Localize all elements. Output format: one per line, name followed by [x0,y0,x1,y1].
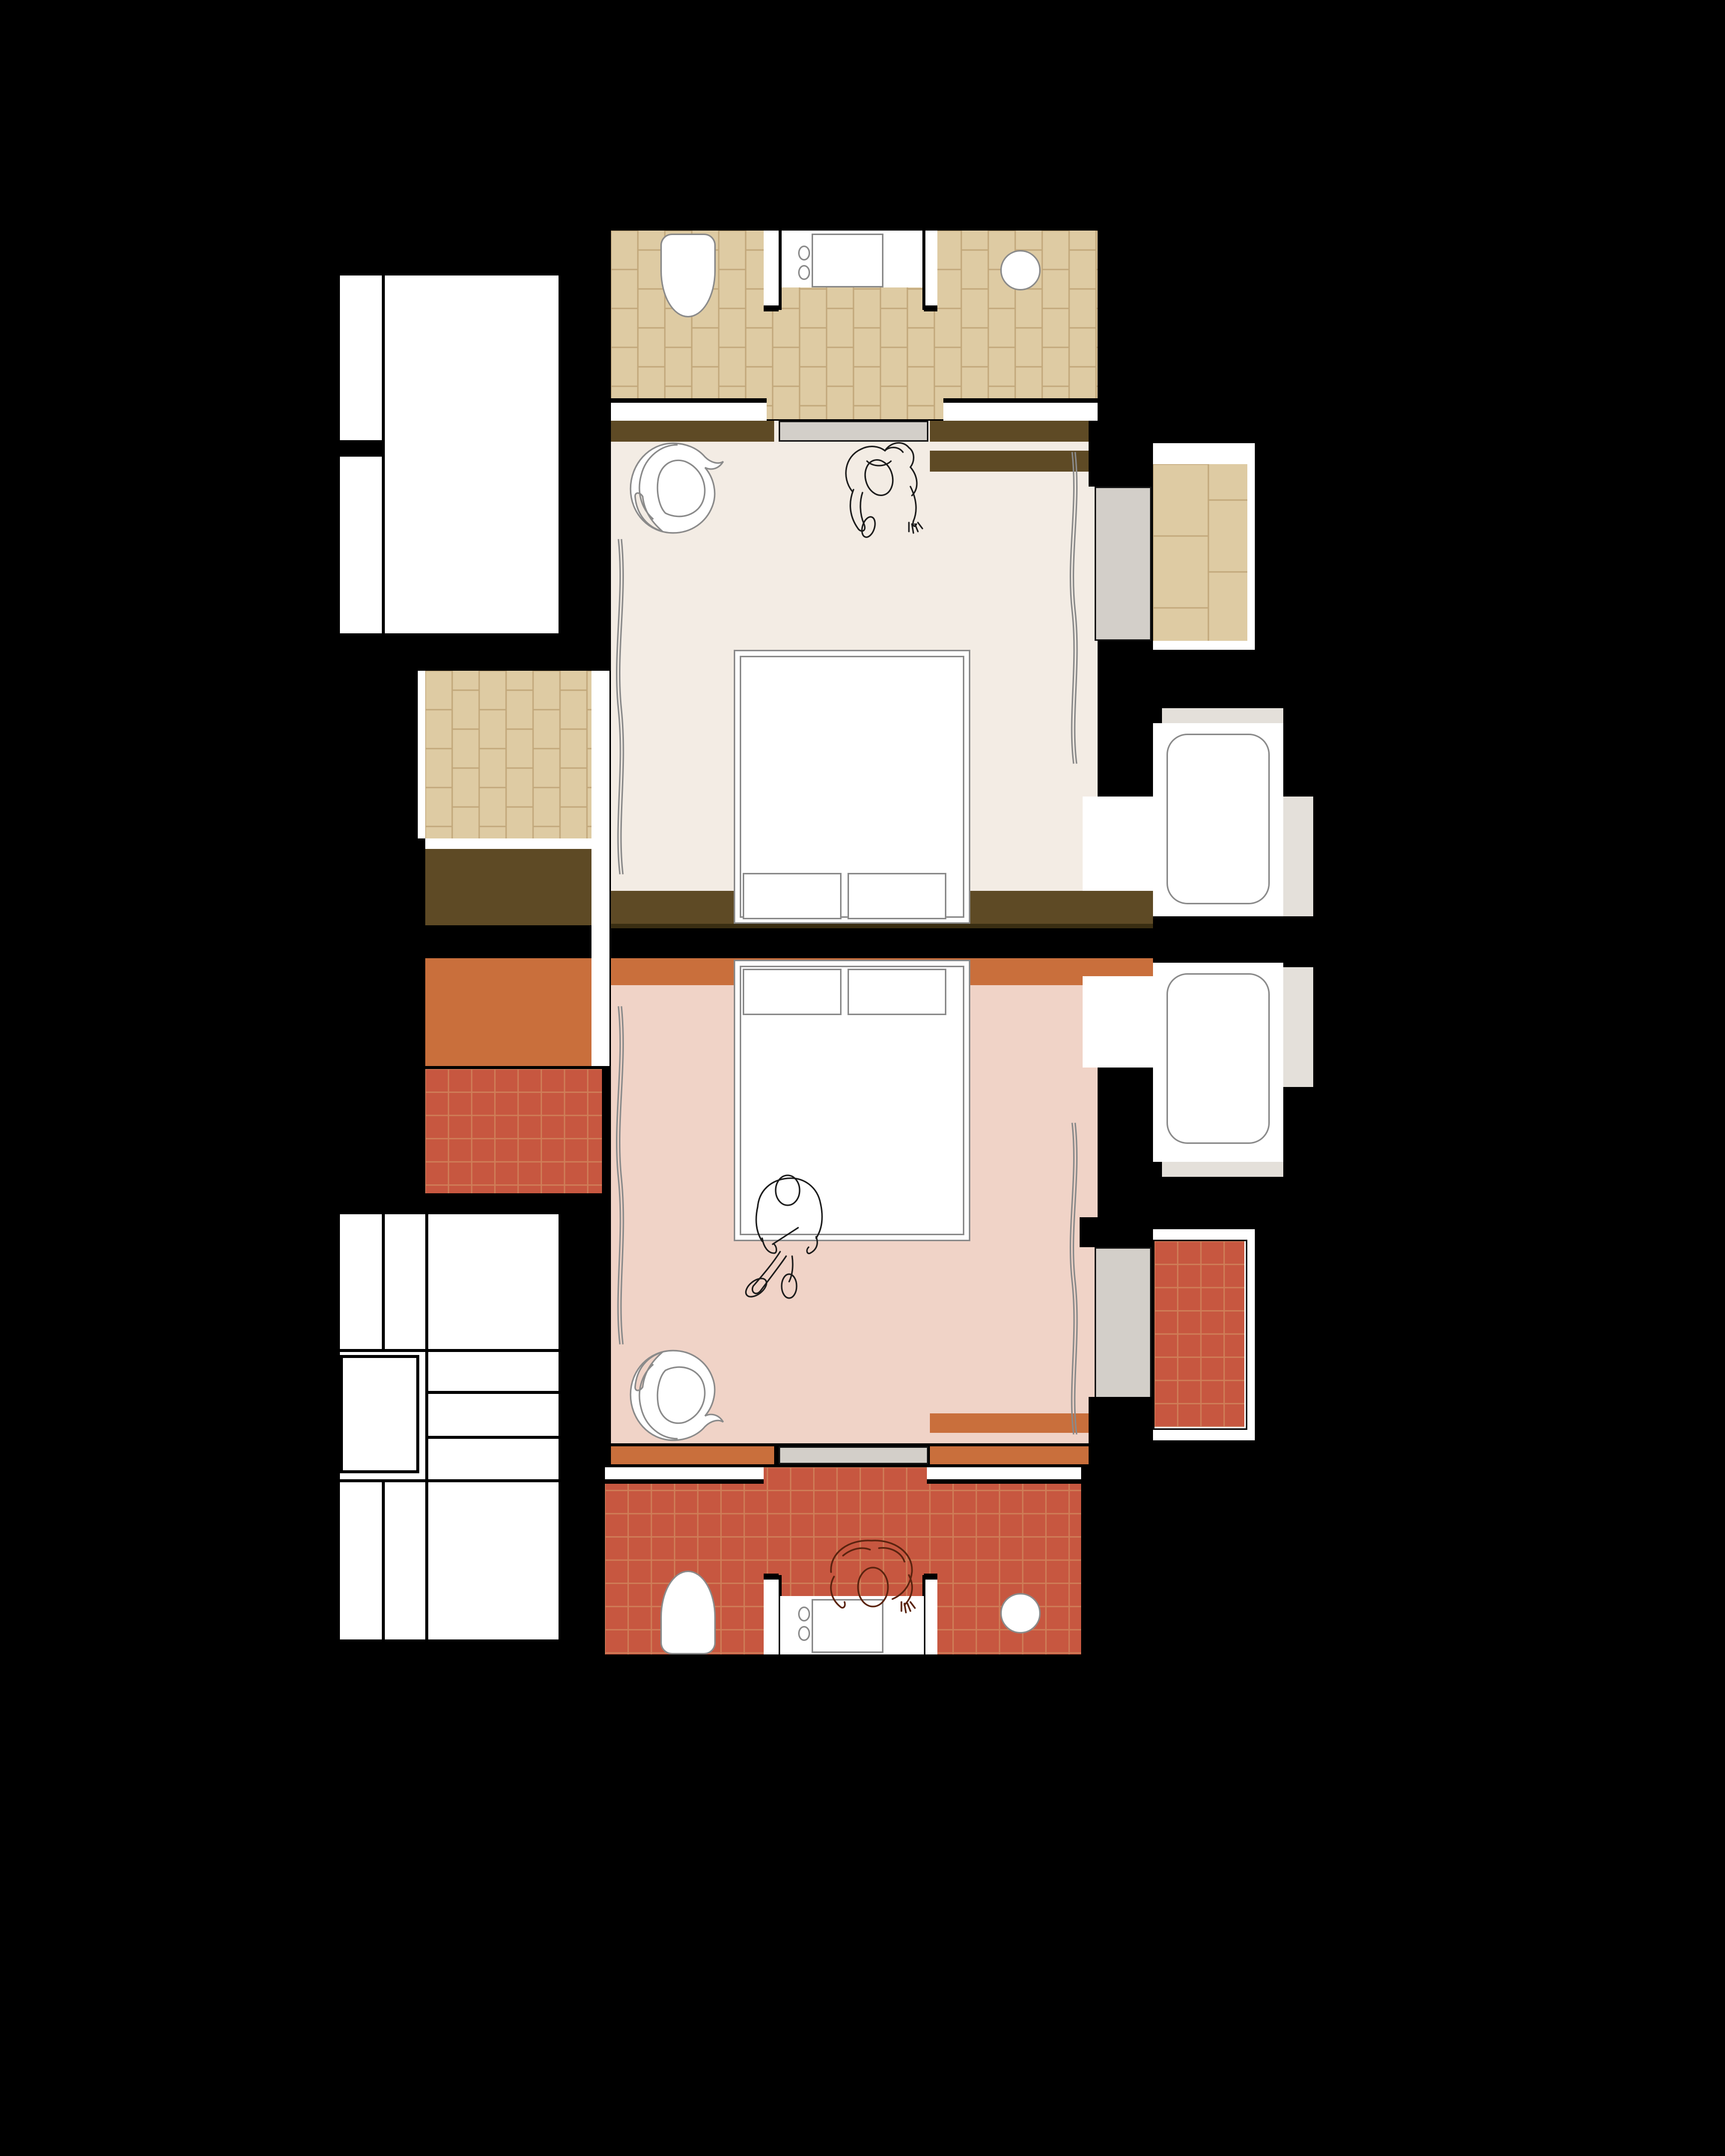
wardrobe-band [930,1413,1089,1433]
tub-surround [1283,967,1313,1087]
wardrobe-band [930,1446,1089,1464]
threshold [943,403,1098,421]
balcony-sliding-door [1095,487,1151,641]
threshold [605,1467,764,1479]
closet-divider [425,1214,428,1639]
threshold [927,1467,1081,1479]
wardrobe-band [930,451,1089,472]
tub-surround [1162,1162,1283,1177]
dressing-wing-tiles-upper [425,671,599,838]
door-jamb-line [779,231,781,310]
threshold-line [943,398,1098,403]
door-jamb-line [922,231,925,310]
curtain-left-upper [612,536,630,877]
balcony-tiles-lower [1153,1240,1247,1430]
dressing-wing-tiles-lower [425,1069,602,1193]
threshold [611,403,767,421]
threshold-line [611,398,767,403]
door-jamb-cap [764,305,779,311]
curtain-right-lower [1066,1120,1084,1437]
washbasin-icon [1000,250,1041,290]
closet-shelf-line [340,1349,559,1351]
closet-divider [382,1214,384,1349]
bathtub-icon [1166,973,1270,1144]
closet-box [340,1355,419,1473]
closet-divider [382,275,384,633]
door-jamb-cap [764,1574,779,1580]
door-jamb [764,231,779,305]
tub-surround [1283,797,1313,916]
sliding-door [779,1446,928,1464]
faucet-knob [798,246,810,261]
lounge-chair-upper [623,437,723,539]
bed-upper [734,650,970,924]
door-jamb [924,1580,937,1654]
curtain-right-upper [1066,449,1084,767]
pillow [848,873,946,919]
faucet-knob [798,1626,810,1641]
bathtub-icon [1166,734,1270,904]
floor-plan-scene [0,0,1725,2156]
wardrobe-block-upper [425,849,591,925]
wall-line [418,665,599,671]
washbasin-icon [1000,1593,1041,1633]
door-jamb [764,1580,779,1654]
tub-surround [1162,708,1283,723]
threshold [425,838,591,849]
closet-column [1083,797,1153,891]
wardrobe-band [611,1446,774,1464]
wall-block [1089,1397,1153,1464]
pillow [848,969,946,1015]
closet-notch [340,440,382,457]
door-jamb-cap [924,305,937,311]
door-jamb-cap [924,1574,937,1580]
door-jamb [924,231,937,305]
pillow [743,969,842,1015]
wall-block [1089,421,1153,487]
person-walking-upper [831,439,936,538]
closet-column [1083,976,1153,1068]
threshold-line [605,1479,764,1483]
closet-divider [382,1479,384,1639]
pillow [743,873,842,919]
faucet-knob [798,1607,810,1621]
balcony-tiles-upper [1153,464,1247,641]
vanity-counter-upper [812,234,883,287]
closet-shelf-line [340,1479,559,1482]
curtain-left-lower [612,1003,630,1347]
wardrobe-block-lower [425,958,591,1066]
person-at-vanity-lower [822,1536,924,1608]
wall-block [1080,1217,1151,1247]
closet-shelf-line [427,1436,559,1438]
headboard-line [611,924,1153,928]
faucet-knob [798,265,810,280]
wardrobe-band [930,421,1089,442]
corridor-strip [591,671,609,1066]
wing-edge [418,671,425,838]
person-walking-lower [743,1171,839,1300]
closet-shelf-line [427,1391,559,1393]
lounge-chair-lower [623,1345,723,1446]
threshold-line [927,1479,1081,1483]
